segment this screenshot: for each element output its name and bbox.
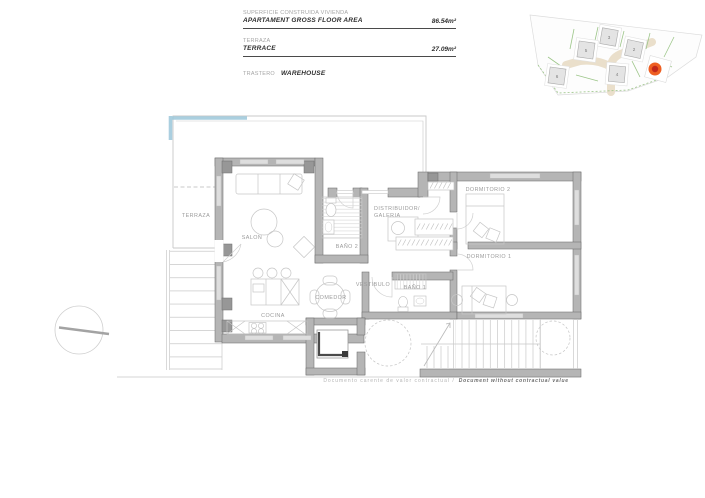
terrace-blue-accent [169, 116, 247, 140]
unit-number-2: 2 [633, 47, 636, 52]
terrace-door-gap [215, 240, 224, 262]
room-label-cocina: COCINA [261, 313, 285, 319]
disclaimer-spanish: Documento carente de valor contractual / [323, 378, 454, 384]
elevator [317, 330, 348, 358]
room-label-bano1: BAÑO 1 [404, 284, 426, 291]
room-label-dormitorio2: DORMITORIO 2 [466, 187, 511, 193]
common-stairs [365, 319, 578, 369]
living-room-furniture [236, 174, 315, 258]
unit-number-6: 6 [556, 74, 559, 79]
room-label-distribuidor: DISTRIBUIDOR/ [374, 206, 420, 212]
room-label-bano2: BAÑO 2 [336, 243, 358, 250]
unit-number-4: 4 [616, 72, 619, 77]
unit-number-3: 3 [608, 35, 611, 40]
room-label-comedor: COMEDOR [315, 295, 346, 301]
room-label-galeria: GALERIA [374, 213, 401, 219]
bedroom1-furniture [452, 286, 518, 314]
room-label-dormitorio1: DORMITORIO 1 [467, 254, 512, 260]
bathroom1-fixtures [395, 274, 426, 312]
location-marker [649, 63, 662, 76]
gallery-glazing [337, 191, 388, 194]
disclaimer-english: Document without contractual value [459, 378, 569, 384]
site-plan-inset: 3 5 2 4 6 [528, 5, 705, 100]
disclaimer: Documento carente de valor contractual /… [308, 378, 584, 384]
room-label-terraza: TERRAZA [182, 213, 210, 219]
room-label-vestibulo: VESTIBULO [356, 282, 390, 288]
kitchen-furniture [227, 268, 307, 334]
north-indicator [55, 306, 109, 354]
room-label-salon: SALON [242, 235, 263, 241]
left-staircase [167, 250, 223, 370]
bathroom2-fixtures [322, 197, 362, 238]
unit-number-5: 5 [585, 48, 588, 53]
